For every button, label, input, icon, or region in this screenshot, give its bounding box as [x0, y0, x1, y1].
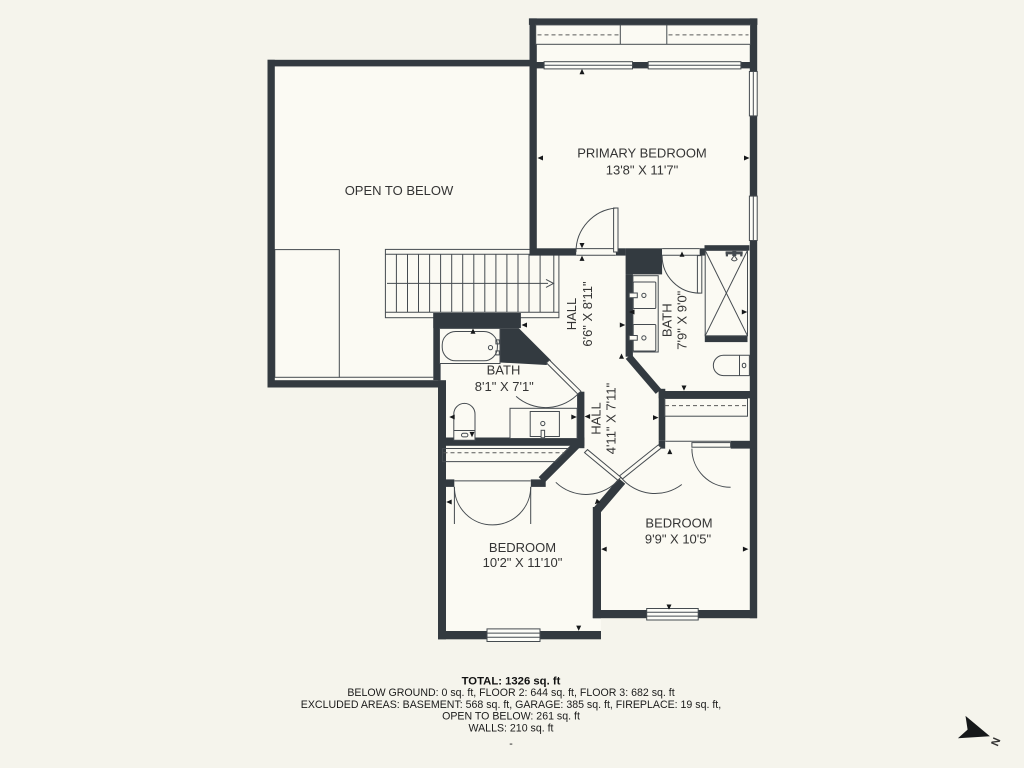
svg-text:9'9" X 10'5": 9'9" X 10'5"	[645, 532, 712, 547]
svg-text:PRIMARY BEDROOM: PRIMARY BEDROOM	[577, 146, 707, 161]
svg-text:7'9" X 9'0": 7'9" X 9'0"	[674, 290, 689, 349]
svg-text:BATH: BATH	[487, 362, 521, 377]
svg-text:WALLS: 210 sq. ft: WALLS: 210 sq. ft	[469, 722, 554, 734]
svg-text:HALL: HALL	[589, 402, 604, 435]
svg-text:BATH: BATH	[659, 303, 674, 337]
svg-text:13'8" X 11'7": 13'8" X 11'7"	[606, 163, 679, 178]
svg-text:BELOW GROUND: 0 sq. ft, FLOOR: BELOW GROUND: 0 sq. ft, FLOOR 2: 644 sq.…	[347, 687, 674, 699]
svg-text:OPEN TO BELOW: OPEN TO BELOW	[345, 183, 454, 198]
svg-text:6'6" X 8'11": 6'6" X 8'11"	[580, 281, 595, 347]
svg-text:OPEN TO BELOW: 261 sq. ft: OPEN TO BELOW: 261 sq. ft	[442, 711, 580, 723]
svg-text:-: -	[509, 738, 513, 750]
svg-text:BEDROOM: BEDROOM	[645, 516, 712, 531]
svg-text:EXCLUDED AREAS: BASEMENT: 568: EXCLUDED AREAS: BASEMENT: 568 sq. ft, GA…	[301, 699, 721, 711]
svg-text:4'11" X 7'11": 4'11" X 7'11"	[604, 382, 619, 454]
svg-text:HALL: HALL	[564, 298, 579, 331]
svg-text:BEDROOM: BEDROOM	[489, 540, 556, 555]
svg-text:TOTAL: 1326 sq. ft: TOTAL: 1326 sq. ft	[462, 676, 561, 688]
svg-text:10'2" X 11'10": 10'2" X 11'10"	[483, 555, 563, 570]
svg-text:8'1" X 7'1": 8'1" X 7'1"	[475, 379, 534, 394]
